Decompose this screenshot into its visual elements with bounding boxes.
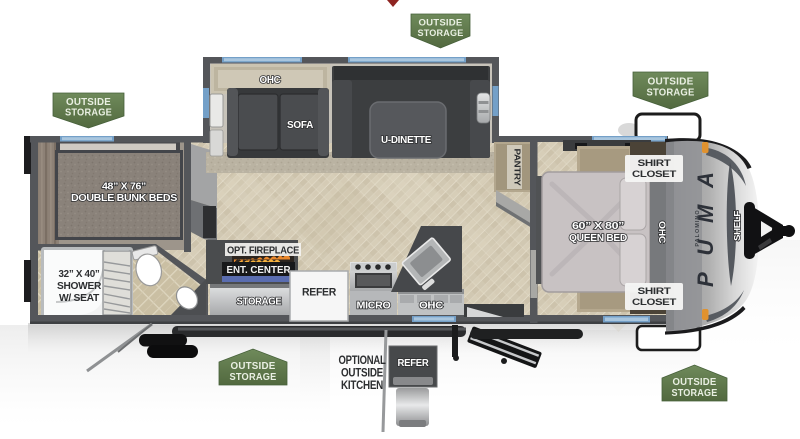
svg-text:W/ SEAT: W/ SEAT xyxy=(59,293,99,304)
svg-text:PALOMINO: PALOMINO xyxy=(695,209,701,246)
svg-text:SHIRT: SHIRT xyxy=(638,286,672,297)
svg-text:STORAGE: STORAGE xyxy=(418,28,464,39)
svg-text:32” X 40”: 32” X 40” xyxy=(59,269,100,280)
svg-text:OHC: OHC xyxy=(657,221,667,244)
svg-text:OUTSIDE: OUTSIDE xyxy=(66,97,111,108)
svg-text:OPTIONAL: OPTIONAL xyxy=(339,355,386,367)
svg-text:PANTRY: PANTRY xyxy=(513,149,522,187)
svg-text:SHIRT: SHIRT xyxy=(638,158,672,169)
svg-text:OUTSIDE: OUTSIDE xyxy=(673,377,717,388)
svg-text:SHOWER: SHOWER xyxy=(57,281,102,292)
svg-text:OUTSIDE: OUTSIDE xyxy=(341,368,384,380)
svg-text:STORAGE: STORAGE xyxy=(647,88,695,99)
svg-text:ENT. CENTER: ENT. CENTER xyxy=(227,265,292,276)
svg-text:OUTSIDE: OUTSIDE xyxy=(648,77,694,88)
svg-text:SHELF: SHELF xyxy=(733,211,742,241)
svg-text:REFER: REFER xyxy=(302,287,336,299)
svg-text:QUEEN BED: QUEEN BED xyxy=(569,233,627,244)
svg-text:CLOSET: CLOSET xyxy=(632,169,677,180)
svg-text:STORAGE: STORAGE xyxy=(672,388,718,399)
svg-text:REFER: REFER xyxy=(398,357,430,369)
svg-text:OHC: OHC xyxy=(260,75,281,86)
svg-text:STORAGE: STORAGE xyxy=(230,372,277,383)
svg-text:STORAGE: STORAGE xyxy=(237,296,282,308)
svg-text:OUTSIDE: OUTSIDE xyxy=(419,18,463,29)
svg-text:60” X 80”: 60” X 80” xyxy=(572,221,624,232)
svg-text:MICRO: MICRO xyxy=(357,300,391,312)
svg-text:OHC: OHC xyxy=(419,300,444,312)
svg-text:KITCHEN: KITCHEN xyxy=(341,380,383,392)
svg-text:OUTSIDE: OUTSIDE xyxy=(231,361,276,372)
svg-text:OPT. FIREPLACE: OPT. FIREPLACE xyxy=(227,246,300,257)
svg-text:DOUBLE BUNK BEDS: DOUBLE BUNK BEDS xyxy=(71,193,178,204)
svg-text:STORAGE: STORAGE xyxy=(65,108,112,119)
svg-text:CLOSET: CLOSET xyxy=(632,297,677,308)
svg-text:48” X 76”: 48” X 76” xyxy=(102,182,146,193)
svg-text:U-DINETTE: U-DINETTE xyxy=(381,134,431,146)
svg-text:SOFA: SOFA xyxy=(287,119,314,131)
